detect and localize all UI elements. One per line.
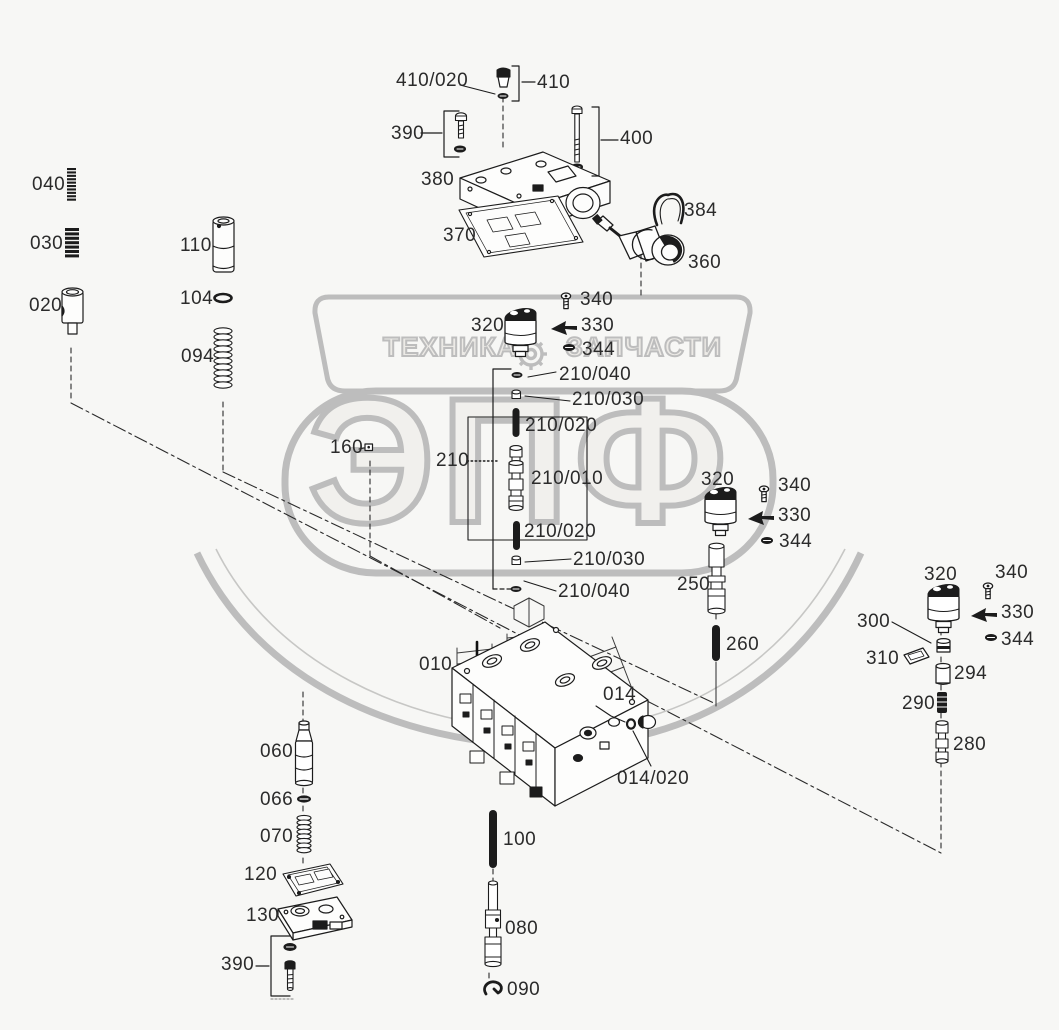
part-label-210-020-bottom: 210/020 xyxy=(524,522,596,542)
parts-diagram-page: ТЕХНИКА ЗАПЧАСТИ ЭПФ xyxy=(0,0,1059,1030)
part-label-210-040-top: 210/040 xyxy=(559,365,631,385)
shim-310-icon xyxy=(904,648,929,664)
part-label-320-b: 320 xyxy=(701,470,734,490)
part-label-014-020: 014/020 xyxy=(617,769,689,789)
diagram-artwork xyxy=(0,0,1059,1030)
part-label-340-c: 340 xyxy=(995,563,1028,583)
part-label-320-c: 320 xyxy=(924,565,957,585)
part-label-344-c: 344 xyxy=(1001,630,1034,650)
part-label-090: 090 xyxy=(507,980,540,1000)
part-label-344-b: 344 xyxy=(779,532,812,552)
seal-344a-icon xyxy=(563,344,575,351)
spool-080-icon xyxy=(485,881,501,967)
seal-210-040-bottom-icon xyxy=(511,586,522,592)
part-label-020: 020 xyxy=(29,296,62,316)
pin-260-icon xyxy=(712,625,720,661)
part-label-210-030-top: 210/030 xyxy=(572,390,644,410)
part-label-130: 130 xyxy=(246,906,279,926)
clip-330b-icon xyxy=(748,511,774,525)
bolt-390-bottom-icon xyxy=(284,944,296,991)
part-label-210-030-bottom: 210/030 xyxy=(573,550,645,570)
seal-344b-icon xyxy=(761,537,773,544)
clip-330a-icon xyxy=(551,321,577,335)
bushing-020-icon xyxy=(62,288,83,334)
part-label-410: 410 xyxy=(537,73,570,93)
sensor-360-icon xyxy=(593,215,684,265)
pin-290-icon xyxy=(937,692,947,713)
part-label-066: 066 xyxy=(260,790,293,810)
spring-030-icon xyxy=(65,228,79,257)
part-label-080: 080 xyxy=(505,919,538,939)
part-label-340-b: 340 xyxy=(778,476,811,496)
part-label-120: 120 xyxy=(244,865,277,885)
solenoid-320c-icon xyxy=(928,585,959,633)
part-label-280: 280 xyxy=(953,735,986,755)
part-label-010: 010 xyxy=(419,655,452,675)
part-label-060: 060 xyxy=(260,742,293,762)
part-label-344-a: 344 xyxy=(582,340,615,360)
part-label-300: 300 xyxy=(857,612,890,632)
solenoid-320a-icon xyxy=(505,309,536,357)
part-label-210-020-top: 210/020 xyxy=(525,416,597,436)
part-label-100: 100 xyxy=(503,830,536,850)
part-label-330-c: 330 xyxy=(1001,603,1034,623)
plug-410-icon xyxy=(497,68,510,99)
clip-090-icon xyxy=(485,982,502,994)
plate-130-icon xyxy=(278,897,352,940)
part-label-110: 110 xyxy=(180,236,212,256)
cap-210-030-top-icon xyxy=(512,390,521,398)
oring-104-icon xyxy=(215,294,232,302)
part-label-380: 380 xyxy=(421,170,454,190)
part-label-330-a: 330 xyxy=(581,316,614,336)
part-label-040: 040 xyxy=(32,175,65,195)
piston-110-icon xyxy=(213,217,234,272)
spool-210-010-icon xyxy=(509,446,523,511)
pin-210-020-bottom-icon xyxy=(513,521,520,550)
pin-210-020-top-icon xyxy=(513,408,520,437)
part-label-104: 104 xyxy=(180,289,213,309)
screw-340a-icon xyxy=(561,293,570,309)
part-label-250: 250 xyxy=(677,575,710,595)
part-label-014: 014 xyxy=(603,685,636,705)
bolt-390-top-icon xyxy=(455,113,467,152)
spring-070-icon xyxy=(297,815,311,852)
pin-100-icon xyxy=(489,810,497,868)
part-label-330-b: 330 xyxy=(778,506,811,526)
clip-330c-icon xyxy=(971,608,997,622)
part-label-030: 030 xyxy=(30,234,63,254)
spring-094-icon xyxy=(214,328,232,388)
part-label-160: 160 xyxy=(330,438,363,458)
part-label-210-040-bottom: 210/040 xyxy=(558,582,630,602)
seal-066-icon xyxy=(297,795,311,802)
bolt-400-icon xyxy=(572,106,583,170)
seal-344c-icon xyxy=(985,634,997,641)
spring-040-icon xyxy=(67,168,76,201)
part-label-210-010: 210/010 xyxy=(531,469,603,489)
spool-250-icon xyxy=(708,543,725,614)
part-label-070: 070 xyxy=(260,827,293,847)
solenoid-320b-icon xyxy=(705,488,736,536)
part-label-390-bottom: 390 xyxy=(221,955,254,975)
part-label-390-top: 390 xyxy=(391,124,424,144)
sleeve-294-icon xyxy=(936,664,950,685)
screw-340c-icon xyxy=(983,583,992,599)
part-label-290: 290 xyxy=(902,694,935,714)
screw-340b-icon xyxy=(759,486,768,502)
part-label-370: 370 xyxy=(443,226,476,246)
piston-060-icon xyxy=(296,721,313,786)
bushing-300-icon xyxy=(937,639,950,652)
spool-280-icon xyxy=(936,721,948,763)
part-label-310: 310 xyxy=(866,649,899,669)
part-label-210: 210 xyxy=(436,451,469,471)
part-label-294: 294 xyxy=(954,664,987,684)
clip-384-icon xyxy=(654,194,683,225)
center-lines xyxy=(71,403,941,853)
part-label-384: 384 xyxy=(684,201,717,221)
part-label-340-a: 340 xyxy=(580,290,613,310)
gasket-120-icon xyxy=(283,864,343,896)
seal-210-040-top-icon xyxy=(512,372,523,378)
part-label-410-020: 410/020 xyxy=(396,71,468,91)
part-label-400: 400 xyxy=(620,129,653,149)
part-label-320-a: 320 xyxy=(471,316,504,336)
part-label-360: 360 xyxy=(688,253,721,273)
plug-160-icon xyxy=(365,444,373,451)
part-label-260: 260 xyxy=(726,635,759,655)
part-label-094: 094 xyxy=(181,347,214,367)
cap-210-030-bottom-icon xyxy=(512,556,521,564)
